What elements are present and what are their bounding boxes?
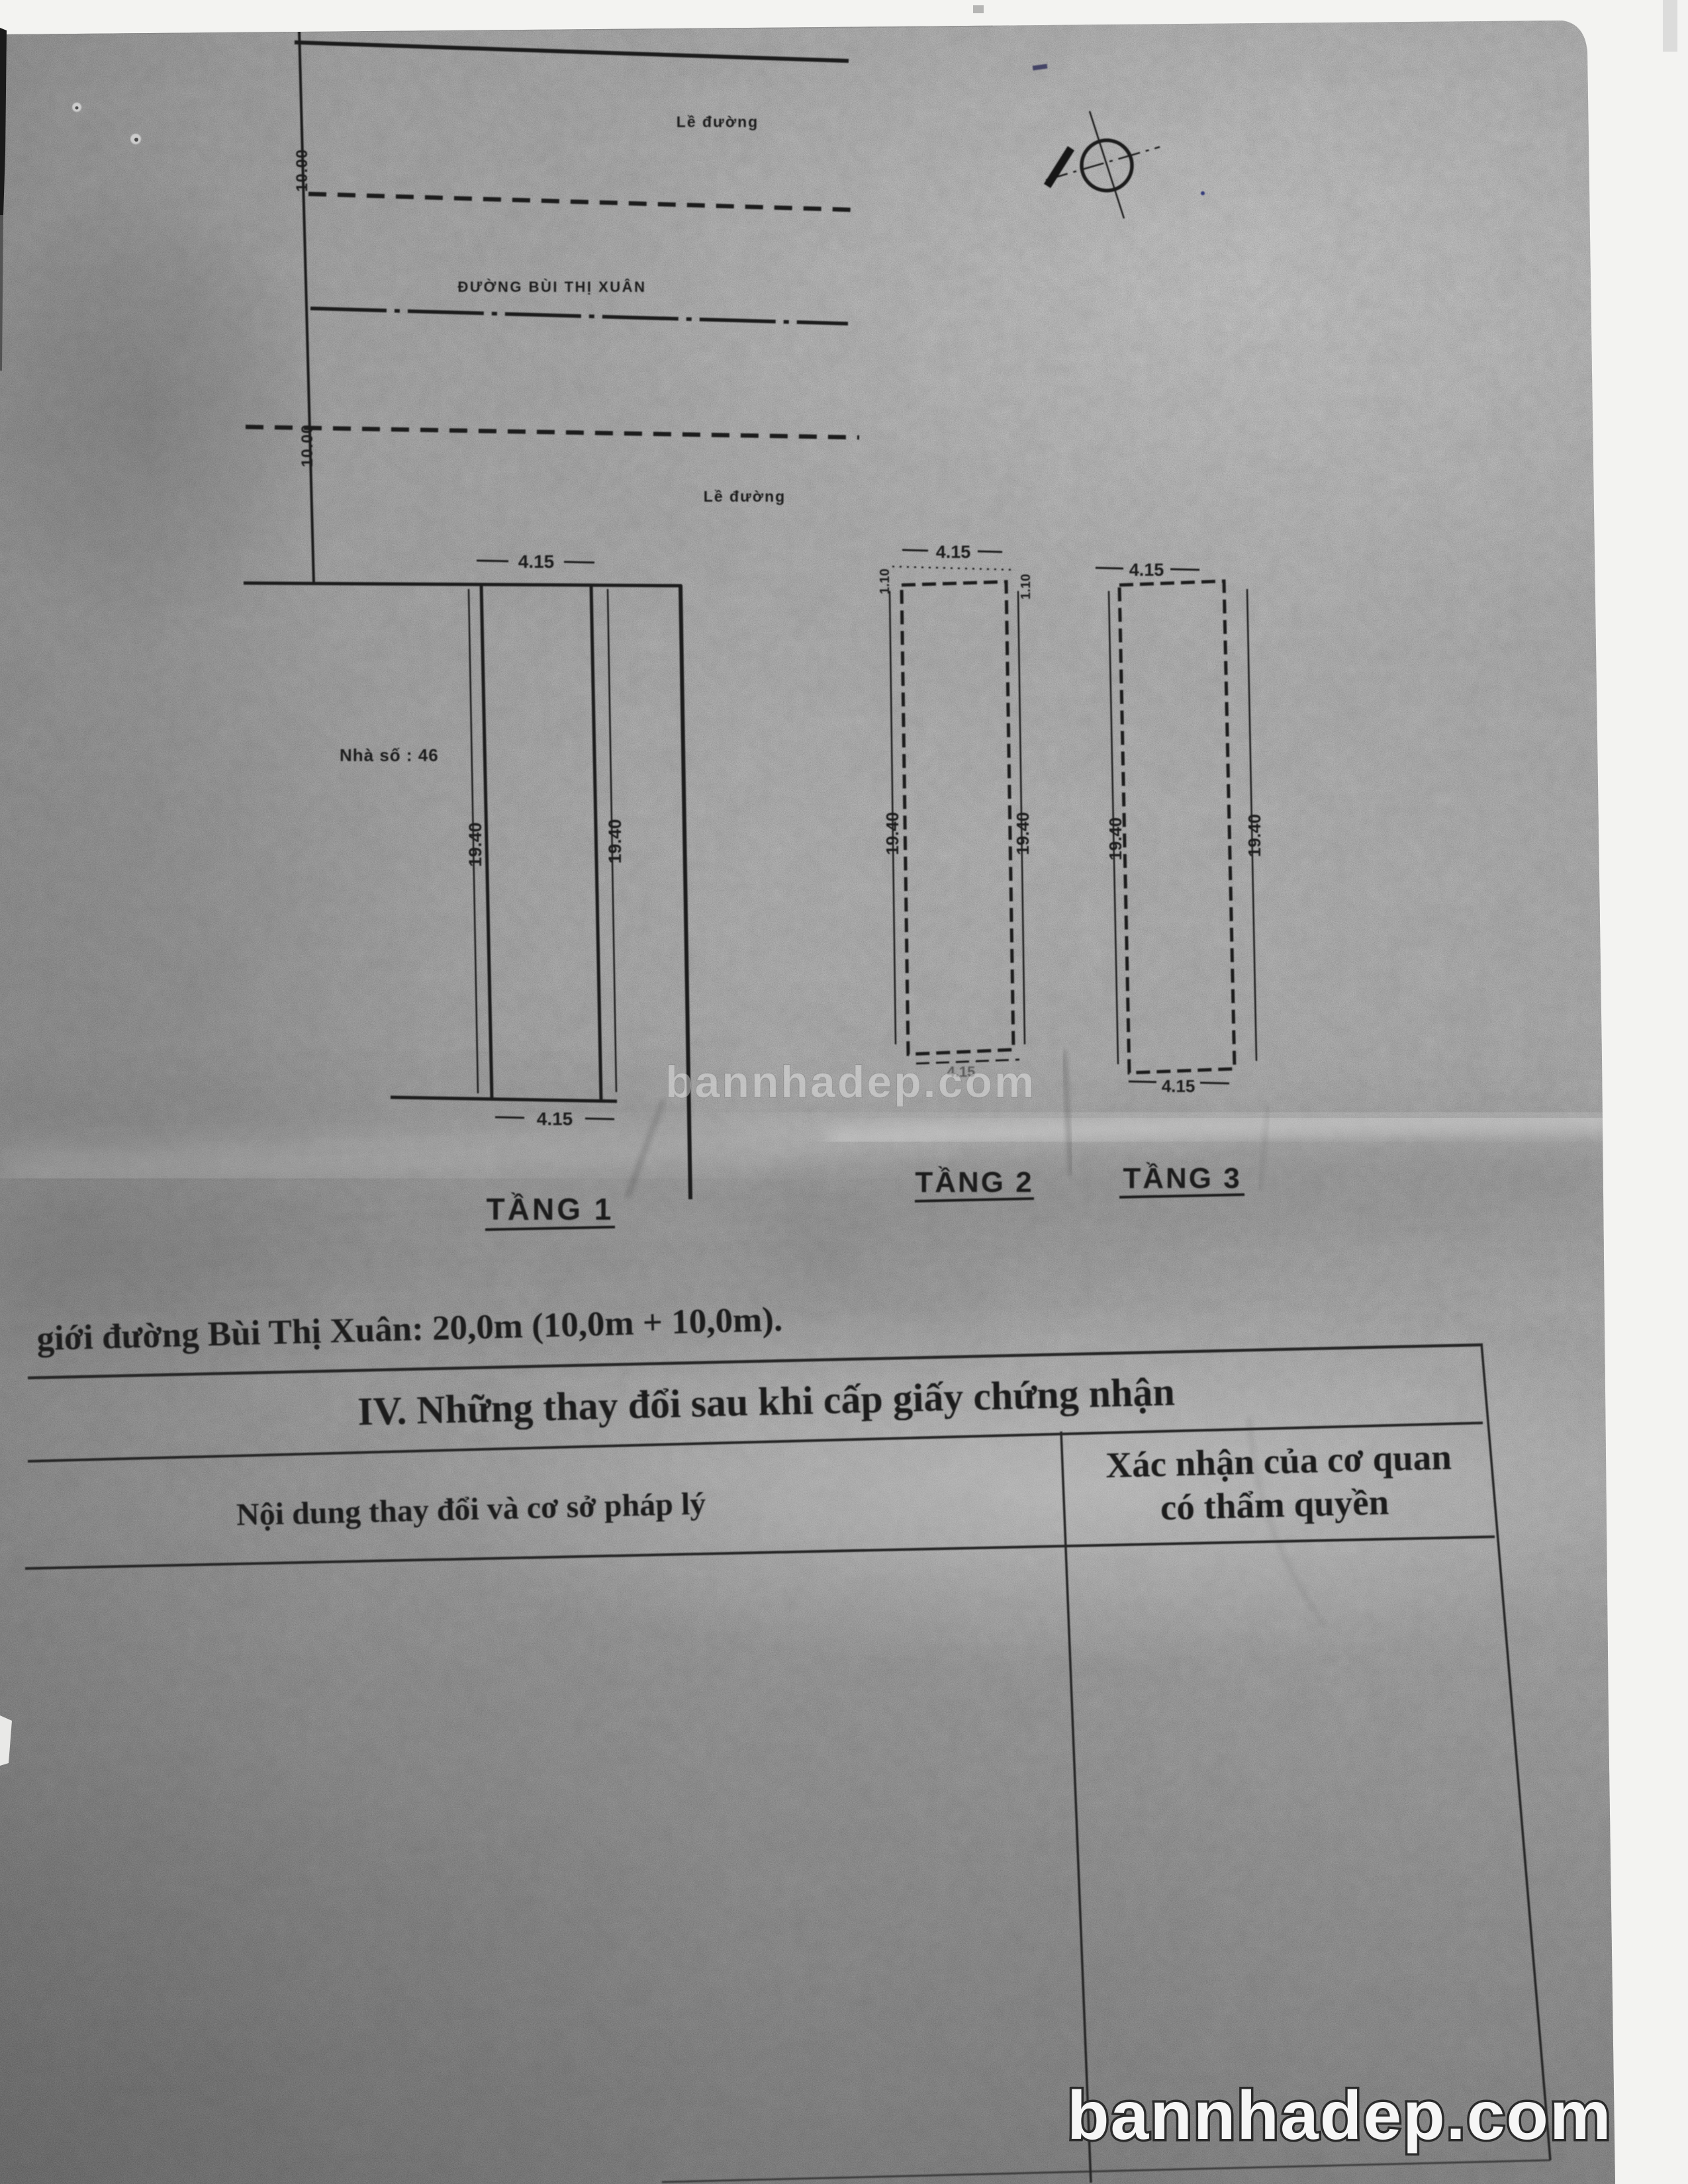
- svg-text:4.15: 4.15: [1129, 560, 1164, 580]
- svg-text:Lề đường: Lề đường: [677, 113, 759, 130]
- svg-text:4.15: 4.15: [1162, 1076, 1196, 1096]
- svg-text:19.40: 19.40: [465, 822, 485, 867]
- svg-text:4.15: 4.15: [936, 542, 971, 562]
- svg-text:TẦNG 2: TẦNG 2: [915, 1165, 1033, 1199]
- svg-text:19.40: 19.40: [1105, 817, 1125, 860]
- svg-text:19.40: 19.40: [1244, 814, 1264, 857]
- svg-text:ĐƯỜNG BÙI THỊ XUÂN: ĐƯỜNG BÙI THỊ XUÂN: [458, 279, 647, 295]
- svg-text:10.00: 10.00: [299, 424, 316, 467]
- svg-text:Xác nhận của cơ quan: Xác nhận của cơ quan: [1105, 1437, 1452, 1486]
- svg-text:4.15: 4.15: [537, 1109, 573, 1129]
- svg-text:có thẩm quyền: có thẩm quyền: [1160, 1482, 1389, 1527]
- svg-text:TẦNG 1: TẦNG 1: [487, 1192, 614, 1226]
- svg-text:Lề đường: Lề đường: [704, 488, 786, 505]
- svg-text:bannhadep.com: bannhadep.com: [665, 1057, 1036, 1107]
- svg-text:bannhadep.com: bannhadep.com: [1067, 2077, 1612, 2154]
- svg-text:19.40: 19.40: [882, 812, 902, 855]
- svg-text:1.10: 1.10: [878, 569, 892, 594]
- svg-text:19.40: 19.40: [1013, 812, 1033, 855]
- svg-text:TẦNG 3: TẦNG 3: [1123, 1161, 1241, 1195]
- svg-text:19.40: 19.40: [605, 819, 625, 864]
- svg-text:1.10: 1.10: [1019, 574, 1033, 600]
- svg-text:4.15: 4.15: [518, 551, 555, 572]
- svg-text:10.00: 10.00: [293, 149, 311, 192]
- svg-text:Nhà số : 46: Nhà số : 46: [340, 745, 439, 765]
